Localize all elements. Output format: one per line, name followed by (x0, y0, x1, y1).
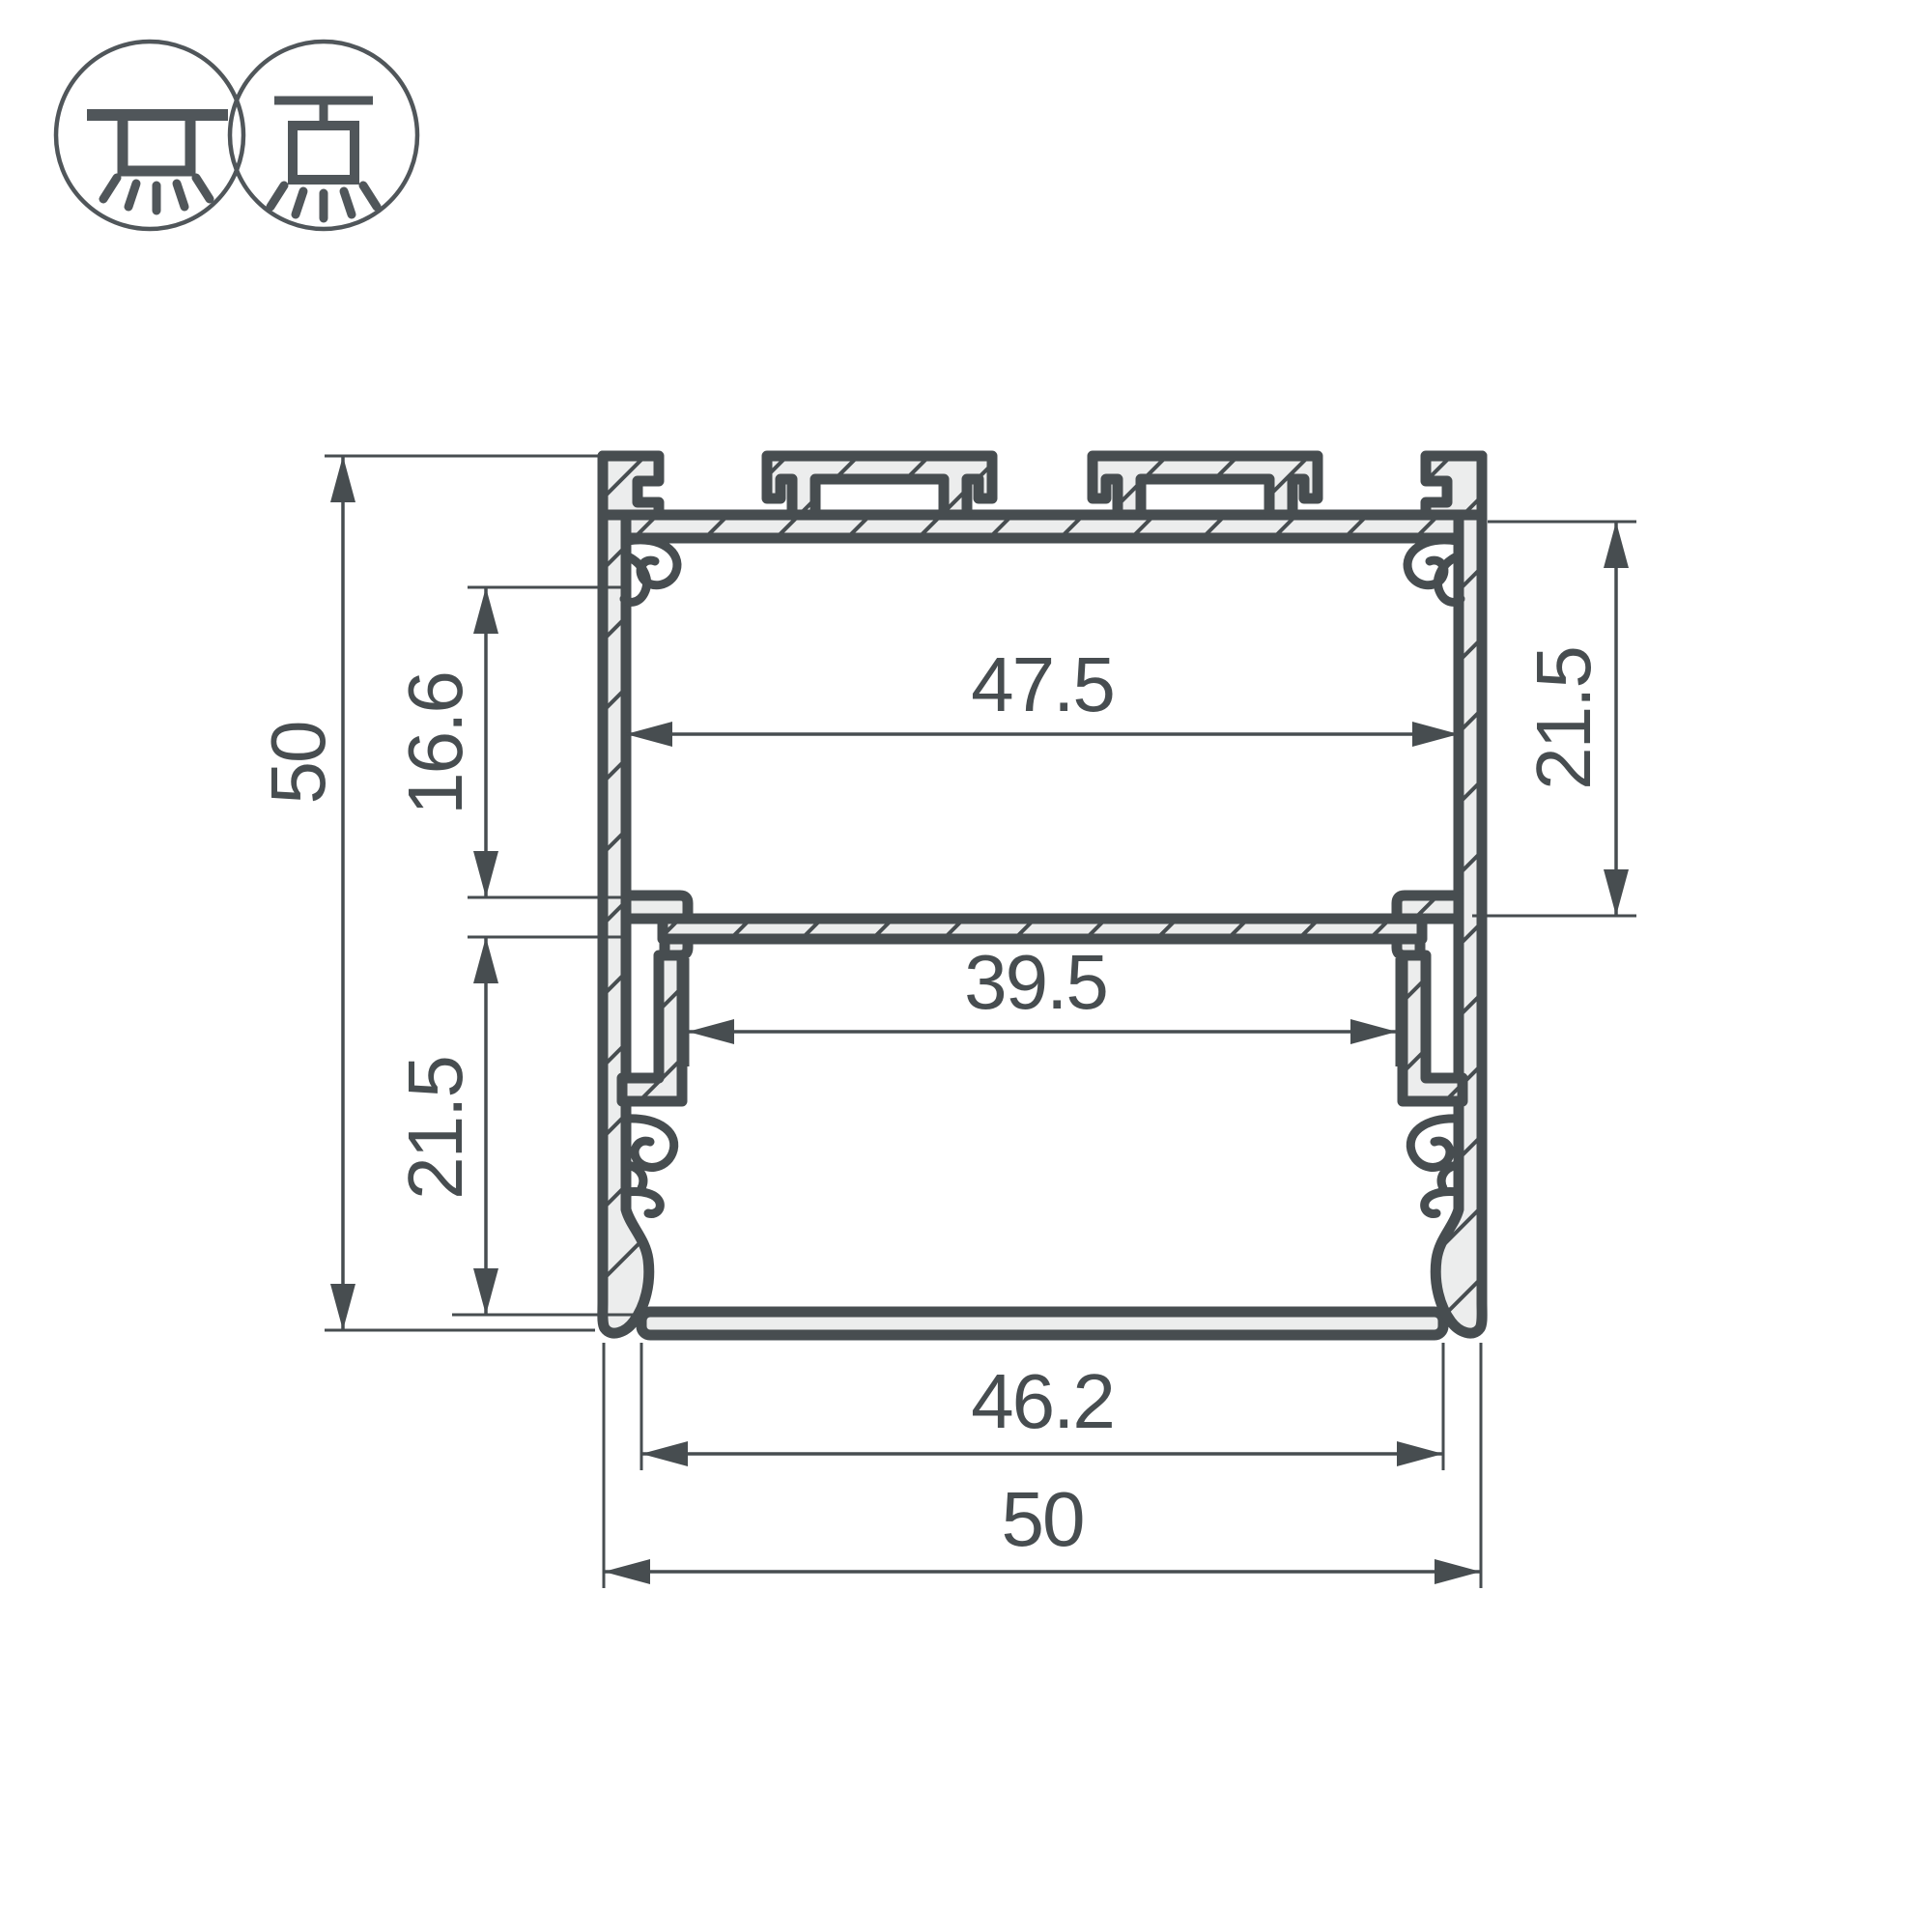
arrowhead-right (1350, 1019, 1397, 1044)
arrowhead-right (1397, 1441, 1443, 1466)
luminaire-box (293, 126, 355, 180)
arrowhead-up (1604, 522, 1629, 568)
profile-cross-section (603, 456, 1482, 1335)
top-channel-floor (626, 515, 1459, 538)
comb-tooth (767, 456, 992, 515)
technical-drawing: 50 16.6 21.5 47.5 (0, 0, 1932, 1932)
dimension-bottom-opening-width: 46.2 (641, 1343, 1443, 1470)
extension-line (468, 587, 663, 897)
arrowhead-left (641, 1441, 688, 1466)
arrowhead-down (1604, 869, 1629, 916)
arrowhead-left (604, 1559, 650, 1584)
drawing-canvas: 50 16.6 21.5 47.5 (0, 0, 1932, 1932)
luminaire-box (123, 115, 190, 171)
light-rays (103, 178, 210, 211)
arrowhead-down (473, 1268, 498, 1315)
dim-label-overall-width: 50 (1002, 1476, 1084, 1562)
dim-label-top-to-shelf-right: 21.5 (1520, 647, 1606, 790)
screw-port-curl (626, 1119, 674, 1168)
pendant-mount-icon (230, 42, 417, 229)
top-corner-post (603, 456, 659, 515)
arrowhead-right (1412, 722, 1459, 747)
icon-circle (56, 42, 243, 229)
dimension-top-to-shelf-right: 21.5 (1472, 522, 1636, 916)
arrowhead-up (473, 587, 498, 634)
arrowhead-up (330, 456, 355, 502)
dim-label-hook-to-shelf: 16.6 (392, 672, 478, 815)
dim-label-top-inner-width: 47.5 (971, 641, 1114, 727)
arrowhead-right (1435, 1559, 1481, 1584)
light-rays (270, 185, 377, 218)
arrowhead-up (473, 937, 498, 983)
profile-right-half (1093, 456, 1482, 1333)
dim-label-shelf-to-seat-left: 21.5 (392, 1057, 478, 1200)
arrowhead-left (688, 1019, 734, 1044)
profile-left-half (603, 456, 992, 1333)
dim-label-overall-height: 50 (255, 723, 341, 805)
dimension-shelf-slot-width: 39.5 (688, 939, 1397, 1066)
diffuser-plate (641, 1312, 1443, 1335)
surface-mount-icon (56, 42, 243, 229)
dimension-top-inner-width: 47.5 (626, 641, 1459, 747)
arrowhead-left (626, 722, 672, 747)
arrowhead-down (473, 851, 498, 897)
mount-icons (56, 42, 417, 229)
middle-shelf-plate (663, 919, 1422, 939)
dim-label-bottom-opening-width: 46.2 (971, 1358, 1114, 1444)
arrowhead-down (330, 1284, 355, 1330)
dim-label-shelf-slot-width: 39.5 (964, 939, 1107, 1025)
